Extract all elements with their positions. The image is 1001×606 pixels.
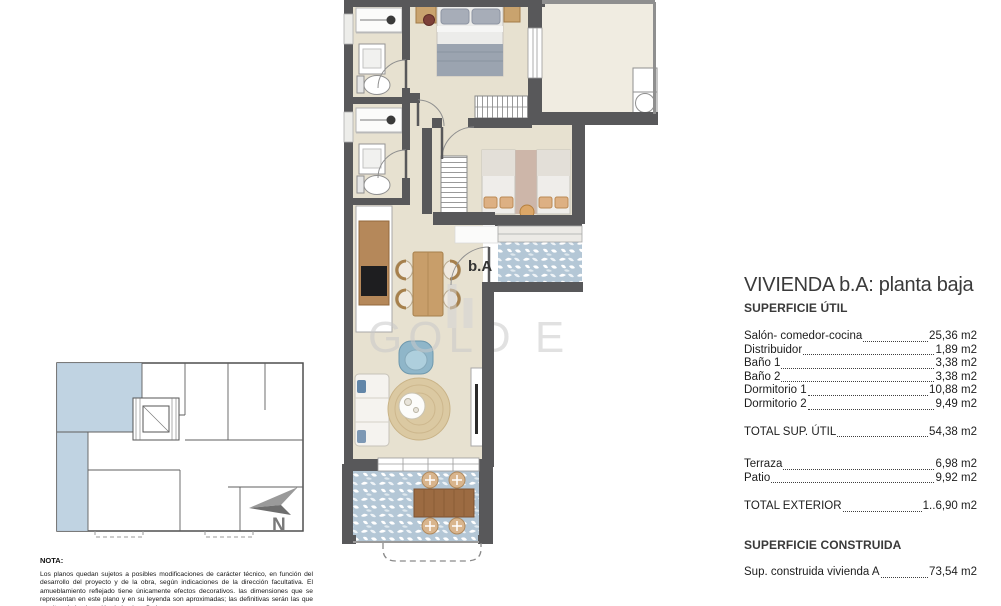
row-value: 9,49 m2 bbox=[935, 398, 977, 412]
desk-chair bbox=[424, 15, 435, 26]
row-label: Distribuidor bbox=[744, 344, 802, 358]
toilet-icon bbox=[357, 76, 364, 93]
total-util-row: TOTAL SUP. ÚTIL 54,38 m2 bbox=[744, 426, 977, 440]
surface-row: Dormitorio 2 9,49 m2 bbox=[744, 398, 977, 412]
sliding-door bbox=[378, 458, 479, 471]
leader-dots bbox=[863, 341, 928, 342]
nota-block: NOTA: Los planos quedan sujetos a posibl… bbox=[40, 556, 313, 606]
surface-panel: VIVIENDA b.A: planta baja SUPERFICIE ÚTI… bbox=[744, 274, 977, 580]
bedroom-2 bbox=[441, 150, 570, 219]
section-title-superficie-construida: SUPERFICIE CONSTRUIDA bbox=[744, 538, 977, 552]
key-plan bbox=[57, 363, 303, 537]
surface-row: Terraza 6,98 m2 bbox=[744, 458, 977, 472]
window bbox=[344, 112, 353, 142]
surface-rows: Salón- comedor-cocina 25,36 m2 Distribui… bbox=[744, 330, 977, 580]
outdoor-stool bbox=[449, 472, 465, 488]
leader-dots bbox=[843, 511, 922, 512]
outdoor-stool bbox=[422, 472, 438, 488]
row-value: 54,38 m2 bbox=[929, 426, 977, 440]
nightstand bbox=[504, 6, 520, 22]
surface-row: Dormitorio 1 10,88 m2 bbox=[744, 384, 977, 398]
row-value: 1..6,90 m2 bbox=[923, 500, 977, 514]
wardrobe bbox=[441, 156, 467, 213]
outdoor-stool bbox=[422, 518, 438, 534]
outdoor-stool bbox=[449, 518, 465, 534]
section-title-superficie-util: SUPERFICIE ÚTIL bbox=[744, 301, 977, 315]
row-label: Dormitorio 1 bbox=[744, 384, 807, 398]
row-value: 10,88 m2 bbox=[929, 384, 977, 398]
row-label: Patio bbox=[744, 472, 770, 486]
window bbox=[344, 14, 353, 44]
row-label: Dormitorio 2 bbox=[744, 398, 807, 412]
coffee-table bbox=[399, 393, 425, 419]
row-value: 6,98 m2 bbox=[935, 458, 977, 472]
row-label: Baño 1 bbox=[744, 357, 780, 371]
surface-row: Patio 9,92 m2 bbox=[744, 472, 977, 486]
surface-row: Distribuidor 1,89 m2 bbox=[744, 344, 977, 358]
dining-chair bbox=[396, 290, 413, 309]
leader-dots bbox=[803, 354, 934, 355]
row-value: 9,92 m2 bbox=[935, 472, 977, 486]
row-label: TOTAL SUP. ÚTIL bbox=[744, 426, 836, 440]
dashed-boundary bbox=[383, 543, 481, 561]
stair-core bbox=[133, 398, 179, 440]
leader-dots bbox=[781, 381, 934, 382]
row-value: 3,38 m2 bbox=[935, 371, 977, 385]
row-value: 1,89 m2 bbox=[935, 344, 977, 358]
total-exterior-row: TOTAL EXTERIOR 1..6,90 m2 bbox=[744, 500, 977, 514]
row-label: Baño 2 bbox=[744, 371, 780, 385]
surface-row: Baño 2 3,38 m2 bbox=[744, 371, 977, 385]
page: { "panel": { "title": "VIVIENDA b.A: pla… bbox=[0, 0, 1001, 606]
constructed-row: Sup. construida vivienda A 73,54 m2 bbox=[744, 566, 977, 580]
leader-dots bbox=[783, 469, 934, 470]
row-label: Terraza bbox=[744, 458, 782, 472]
small-patio-tiles bbox=[498, 242, 582, 283]
nota-heading: NOTA: bbox=[40, 556, 313, 565]
surface-row: Salón- comedor-cocina 25,36 m2 bbox=[744, 330, 977, 344]
row-value: 73,54 m2 bbox=[929, 566, 977, 580]
window bbox=[528, 28, 542, 78]
leader-dots bbox=[781, 368, 934, 369]
surface-row: Baño 1 3,38 m2 bbox=[744, 357, 977, 371]
leader-dots bbox=[881, 577, 929, 578]
leader-dots bbox=[808, 409, 935, 410]
leader-dots bbox=[808, 395, 928, 396]
leader-dots bbox=[837, 436, 928, 437]
unit-label: b.A bbox=[468, 258, 492, 275]
page-title: VIVIENDA b.A: planta baja bbox=[744, 274, 977, 296]
row-label: TOTAL EXTERIOR bbox=[744, 500, 842, 514]
leader-dots bbox=[771, 482, 934, 483]
row-value: 3,38 m2 bbox=[935, 357, 977, 371]
row-label: Salón- comedor-cocina bbox=[744, 330, 862, 344]
row-label: Sup. construida vivienda A bbox=[744, 566, 880, 580]
row-value: 25,36 m2 bbox=[929, 330, 977, 344]
toilet-icon bbox=[357, 176, 364, 193]
nota-text: Los planos quedan sujetos a posibles mod… bbox=[40, 571, 313, 606]
entry-porch bbox=[455, 226, 498, 243]
cooktop-icon bbox=[361, 266, 387, 296]
tv-icon bbox=[475, 384, 478, 434]
north-label: N bbox=[272, 515, 286, 536]
dining-chair bbox=[396, 261, 413, 280]
